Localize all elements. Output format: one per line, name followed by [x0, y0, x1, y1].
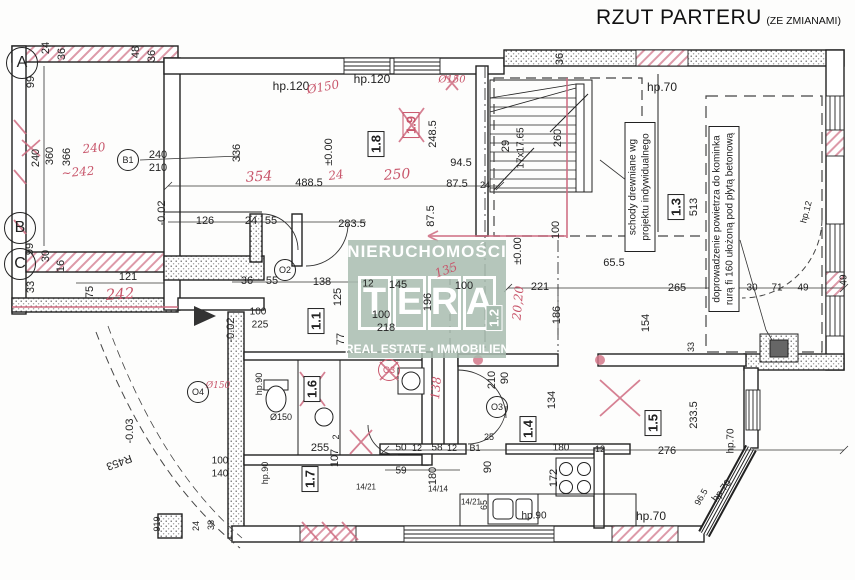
- air-supply-note: doprowadzenie powietrza do kominka rurą …: [709, 126, 740, 312]
- toilet-bowl: [266, 386, 286, 412]
- stairs-note: schody drewniane wg projektu indywidualn…: [625, 122, 656, 252]
- watermark-text-bottom: REAL ESTATE • IMMOBILIEN: [345, 342, 509, 356]
- title-main: RZUT PARTERU: [596, 6, 762, 29]
- washbasin: [315, 408, 333, 426]
- watermark-letter-a: A: [463, 276, 496, 330]
- floorplan-scan: NIERUCHOMOŚCI TERA REAL ESTATE • IMMOBIL…: [0, 0, 855, 580]
- title-suffix: (ZE ZMIANAMI): [766, 15, 841, 27]
- watermark-letter-t: T: [358, 276, 391, 330]
- agency-watermark: NIERUCHOMOŚCI TERA REAL ESTATE • IMMOBIL…: [348, 240, 506, 358]
- staircase: [490, 80, 592, 192]
- watermark-text-top: NIERUCHOMOŚCI: [347, 242, 506, 262]
- fireplace: [770, 340, 788, 357]
- diagonal-bay: [701, 447, 753, 536]
- drawing-title: RZUT PARTERU (ZE ZMIANAMI): [596, 6, 841, 30]
- watermark-brand: TERA: [358, 276, 496, 330]
- kitchen-counter: [460, 494, 636, 526]
- watermark-letter-r: R: [428, 276, 461, 330]
- watermark-letter-e: E: [393, 276, 426, 330]
